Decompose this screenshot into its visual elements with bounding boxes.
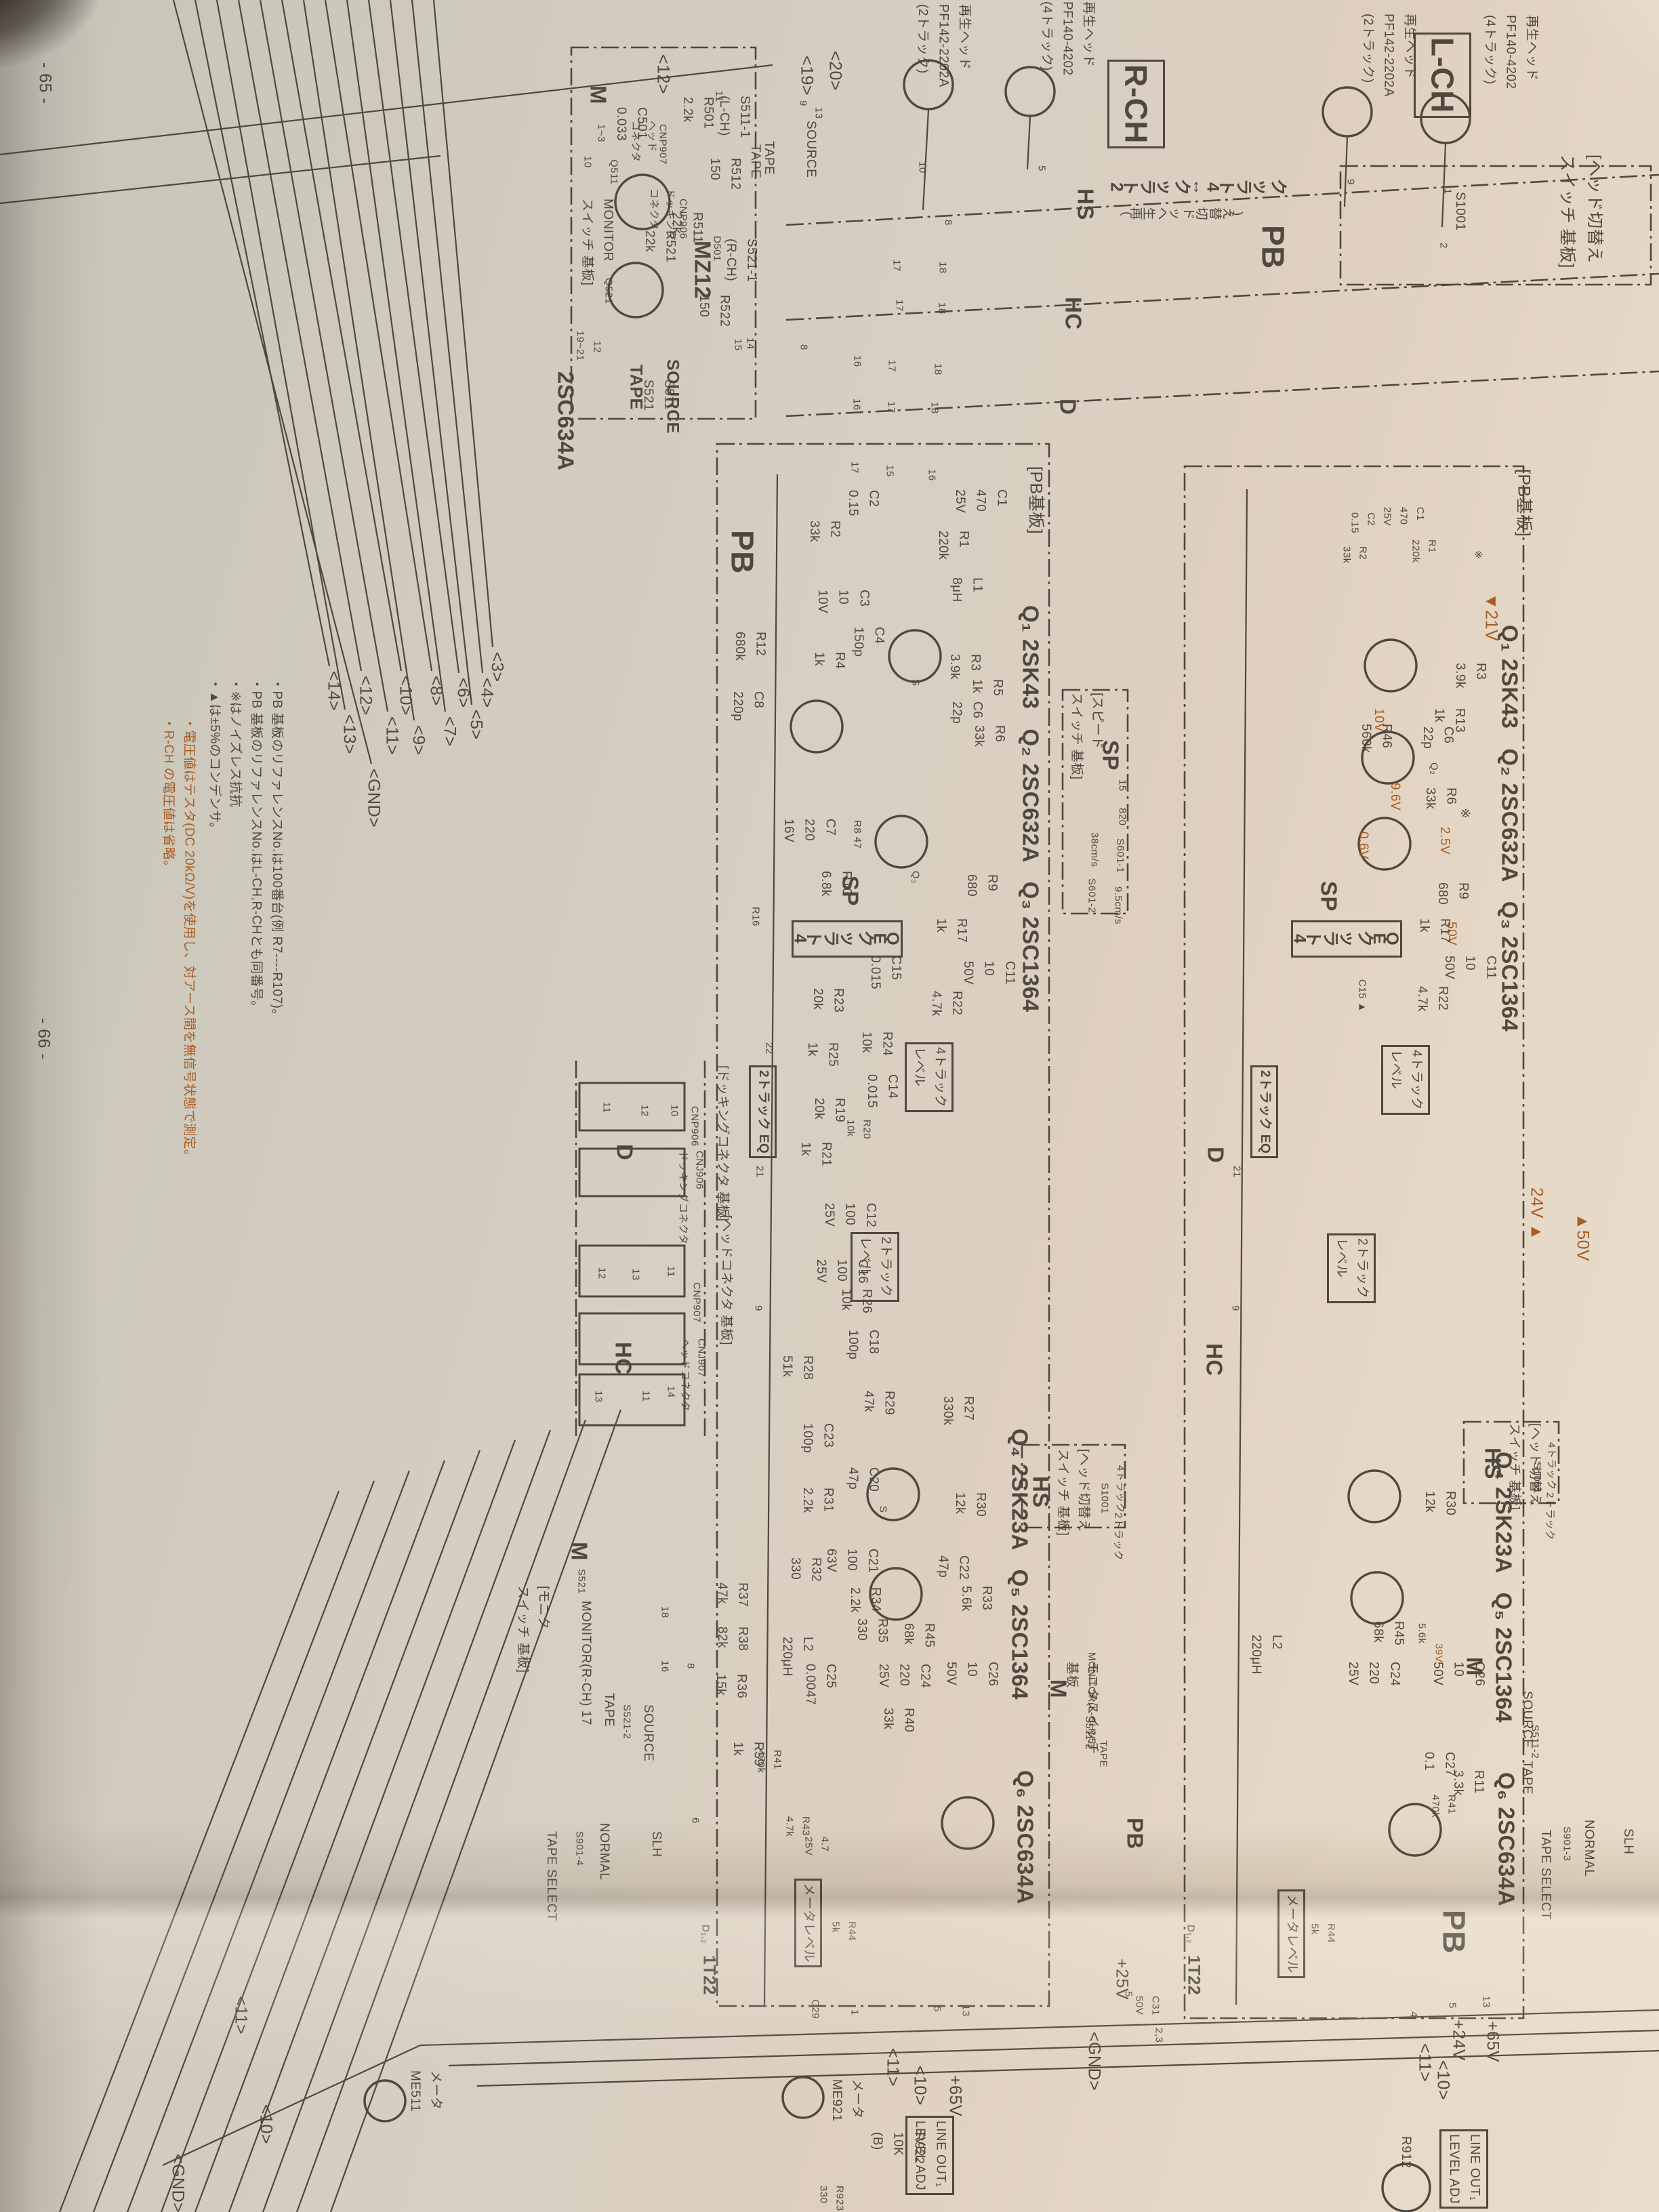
docking-conn-small: ドッキング コネクタ — [645, 188, 678, 241]
pin: 10 — [914, 161, 930, 173]
head-rch-2track: 再生ヘッド PF142-2202A (2トラック) — [912, 4, 974, 87]
r22-r: R22 4.7k — [1411, 986, 1453, 1012]
pin: 17 — [883, 360, 899, 372]
pin: 8 — [795, 344, 811, 350]
r17-r: R17 1k — [1413, 918, 1455, 943]
pin: 22 — [760, 1042, 777, 1054]
r35: R35 330 — [851, 1618, 893, 1643]
s521-ref: S521 — [573, 1569, 589, 1594]
pin: 13 — [627, 1269, 643, 1281]
q3-ref: Q₃ — [907, 871, 923, 884]
track4-small-r: 4トラック — [1542, 1442, 1559, 1490]
pin: 17 — [888, 260, 904, 272]
r17: R17 1k — [930, 918, 972, 943]
level4-l: 4トラック レベル — [905, 1042, 954, 1112]
s901-4: S901-4 — [571, 1831, 587, 1866]
cnj907: CNJ907 ヘッドコネクタ — [676, 1338, 710, 1412]
pin: 5 — [928, 2006, 945, 2012]
conn-11-mid: <11> — [879, 2048, 907, 2087]
r30: R30 12k — [949, 1492, 991, 1517]
conn-gnd-mid: <GND> — [1080, 2032, 1108, 2091]
s511-2-r: S511-2 — [1526, 1725, 1542, 1759]
c7: C7 220 16V — [777, 819, 840, 842]
track-switch-sub: (再生ヘッド 切替え) — [1124, 203, 1239, 224]
annotation-layer: - 65 - - 66 - ・PB 基板のリファレンスNo.は100番台(例 R… — [0, 0, 1659, 2212]
pb-band-l: PB — [717, 530, 768, 574]
conn-8: <8> — [422, 676, 450, 706]
c29: C29 — [806, 1999, 823, 2019]
c2-r: C2 0.15 — [1346, 512, 1379, 533]
lineout-r: LINE OUT₁ LEVEL ADJ — [1439, 2129, 1488, 2209]
conn-gnd: <GND> — [360, 769, 388, 827]
r1-r: R1 220k — [1407, 539, 1440, 563]
d12-r: D₁,₂ — [1182, 1925, 1198, 1944]
slh-l: SLH — [645, 1831, 666, 1857]
r912: R912 — [1395, 2136, 1416, 2168]
q45-l-types: Q₄ 2SK23A Q₅ 2SC1364 — [1002, 1429, 1038, 1700]
s1001-label: S1001 — [1449, 192, 1470, 230]
s1001-r: S1001 — [1528, 1462, 1544, 1494]
noiseless-mark-2: ※ — [1469, 550, 1486, 559]
conn-10-bl: <10> — [252, 2104, 280, 2144]
conn-5: <5> — [462, 710, 490, 740]
r31: R31 2.2k — [796, 1488, 838, 1513]
r19: R19 20k — [808, 1098, 850, 1122]
s1001-bottom: S1001 — [1096, 1483, 1112, 1514]
c-4725: 4.7 25V — [800, 1837, 833, 1856]
hc-band-l: HC — [605, 1342, 641, 1375]
rch-label: R-CH — [1107, 60, 1165, 148]
meter-level-l: メータレベル — [794, 1879, 822, 1967]
track4-small: 4トラック — [1111, 1465, 1128, 1513]
r28: R28 51k — [776, 1355, 818, 1380]
conn-6: <6> — [449, 678, 477, 708]
conn-10-mid: <10> — [906, 2066, 934, 2106]
c2: C2 0.15 — [842, 490, 884, 516]
eq2-l: 2トラック EQ — [749, 1065, 777, 1158]
pin: 16 — [848, 398, 864, 411]
s601-1: S601-1 — [1111, 838, 1128, 873]
level2-r: 2トラック レベル — [1327, 1233, 1376, 1303]
head-rch-4track: 再生ヘッド PF140-4202 (4トラック) — [1036, 1, 1098, 76]
r25: R25 1k — [801, 1042, 843, 1067]
d12-r-type: 1T22 — [1180, 1955, 1208, 1995]
pin: 16 — [848, 355, 865, 367]
q6-l-type: Q₆ 2SC634A — [1007, 1770, 1043, 1904]
conn-gnd-bl: <GND> — [164, 2154, 192, 2212]
r45: R45 68k — [897, 1623, 939, 1647]
v06: 0.6V — [1352, 832, 1373, 859]
r43: R43 4.7k — [781, 1816, 814, 1837]
s511-s521: S511 S521 — [637, 380, 679, 411]
tape-label: TAPE — [744, 144, 765, 178]
head-lch-4track: 再生ヘッド PF140-4202 (4トラック) — [1479, 15, 1541, 89]
pin: 12 — [588, 341, 605, 353]
v50-tri: ▲50V — [1569, 1213, 1597, 1261]
l1: L1 8μH — [945, 577, 987, 602]
r512: R512 150 — [703, 158, 745, 190]
c6-r: C6 22p — [1416, 726, 1458, 749]
pin: 21 — [1228, 1166, 1244, 1178]
noiseless-mark: ※ — [1454, 808, 1475, 819]
pin: 9 — [794, 100, 811, 106]
pin: 10 — [579, 156, 595, 168]
r23: R23 20k — [806, 988, 848, 1012]
v96: 9.6V — [1384, 783, 1405, 811]
r45-r: R45 68k — [1367, 1621, 1409, 1645]
v24: +24V — [1445, 2020, 1473, 2061]
eq4-l: 4トラック EQ — [792, 920, 903, 958]
c24: C24 220 25V — [872, 1664, 935, 1688]
hc-band: HC — [1055, 297, 1091, 330]
pin: 4 — [1405, 2011, 1421, 2018]
conn-19: <19> — [793, 56, 821, 96]
conn-11: <11> — [378, 716, 406, 755]
r44-r: R44 5k — [1306, 1923, 1339, 1943]
cnp907: CNP907 — [688, 1282, 704, 1323]
pin: 13 — [810, 107, 826, 119]
s511-1: S511-1 (L-CH) — [713, 96, 755, 138]
c20: C20 47p — [842, 1467, 884, 1492]
pin: 16 — [923, 469, 939, 481]
c12: C12 100 25V — [818, 1203, 880, 1227]
r22: R22 4.7k — [925, 991, 967, 1017]
c21: C21 100 63V — [820, 1549, 882, 1573]
pin: 2,3 — [1150, 2028, 1166, 2043]
c31: C31 50V — [1130, 1996, 1164, 2015]
s521-1: S521-1 (R-CH) — [720, 239, 762, 282]
v39: 39V — [1430, 1643, 1446, 1662]
s601-2: S601-2 — [1083, 878, 1099, 913]
monitor-board-label: MONITOR スイッチ 基板] — [576, 199, 618, 286]
eq2-r: 2トラック EQ — [1250, 1065, 1278, 1158]
r46-r: R46 560k — [1355, 724, 1397, 753]
eq4-r: 4トラック EQ — [1291, 920, 1402, 958]
pb-board-r-label: [PB基板] — [1510, 469, 1538, 537]
r2: R2 33k — [803, 520, 845, 542]
c8: C8 220p — [726, 691, 769, 721]
r30-r: R30 12k — [1418, 1491, 1460, 1515]
d501-type: MZ12 — [684, 241, 720, 299]
speed-820: 820 — [1113, 808, 1130, 826]
r6: R6 33k — [968, 725, 1010, 747]
pin: 18 — [929, 363, 945, 375]
s901-3: S901-3 — [1558, 1826, 1574, 1861]
pin: 10 — [665, 1105, 682, 1117]
r37: R37 47k — [711, 1582, 753, 1607]
conn-9: <9> — [405, 725, 432, 756]
hs-band: HS — [1067, 188, 1103, 220]
pin: 17 — [882, 401, 899, 413]
schematic-photo: - 65 - - 66 - ・PB 基板のリファレンスNo.は100番台(例 R… — [0, 0, 1659, 2212]
pin: 14 — [741, 337, 758, 350]
r6-r: R6 33k — [1419, 787, 1461, 809]
c3: C3 10 10V — [811, 590, 874, 613]
r27: R27 330k — [937, 1396, 979, 1425]
q511-type: 2SC634A — [548, 371, 583, 471]
pin: 1 — [1439, 188, 1455, 194]
r9: R9 680 — [960, 874, 1002, 897]
r522: R522 150 — [693, 295, 735, 327]
pin: 16 — [656, 1660, 672, 1673]
conn-4: <4> — [473, 678, 501, 708]
r8: R8 47 — [848, 820, 865, 849]
track-switch-label: 2トラック ↔ 4トラック — [1111, 173, 1286, 201]
cnj906: CNJ906 ドッキングコネクタ — [674, 1151, 708, 1244]
m-band-bottom-l: M — [561, 1542, 597, 1561]
source-sw2: SOURCE — [637, 1704, 658, 1761]
r21: R21 1k — [794, 1142, 836, 1166]
tape-sw-r: TAPE — [1516, 1761, 1537, 1795]
slh-r: SLH — [1617, 1828, 1638, 1854]
tape-select-r: TAPE SELECT — [1534, 1830, 1555, 1920]
r40: R40 33k — [877, 1708, 919, 1732]
tape-label: TAPE — [1094, 1740, 1111, 1767]
c1: C1 470 25V — [949, 489, 1011, 513]
normal-r: NORMAL — [1578, 1820, 1599, 1877]
conn-12: <12> — [649, 54, 677, 94]
sp-band-r: SP — [1311, 881, 1347, 912]
pin: 12 — [593, 1267, 609, 1279]
meter-me921: メータ ME921 — [825, 2079, 867, 2122]
pin: 11 — [598, 1102, 614, 1113]
r12: R12 680k — [729, 632, 771, 661]
r34: R34 2.2k — [844, 1587, 886, 1613]
c26: C26 10 50V — [940, 1662, 1002, 1686]
pin: 19~21 — [571, 331, 588, 361]
pin: 11 — [662, 1266, 678, 1277]
c1-r: C1 470 25V — [1378, 507, 1428, 526]
r36: R36 15k — [710, 1674, 752, 1698]
r2-r: R2 33k — [1338, 546, 1371, 564]
r29: R29 47k — [857, 1391, 899, 1415]
pin: 2 — [1435, 243, 1451, 249]
r3: R3 3.9k — [943, 654, 985, 680]
pin: S — [874, 1506, 890, 1513]
pin: 17 — [890, 300, 907, 312]
page-number-right: - 66 - — [30, 1018, 58, 1059]
pin: 15 — [881, 465, 897, 477]
docking-board-label: [ドッキングコネクタ 基板] — [712, 1065, 733, 1222]
conn-11-bl: <11> — [227, 1996, 255, 2034]
pin: 9 — [1342, 179, 1358, 185]
c4: C4 150p — [847, 627, 889, 657]
pin: 1~3 — [592, 124, 609, 142]
pin: 9 — [1227, 1305, 1243, 1311]
l2-r: L2 220μH — [1245, 1635, 1287, 1675]
conn-12b: <12> — [352, 676, 380, 716]
m-band-r2: M — [1456, 1657, 1492, 1676]
lineout-l: LINE OUT₁ LEVEL ADJ — [905, 2116, 954, 2195]
q511-ref: Q511 — [605, 159, 621, 185]
v25: 2.5V — [1433, 827, 1454, 855]
v21: ▼21V — [1477, 593, 1505, 641]
pb-board-l-label: [PB基板] — [1022, 466, 1050, 534]
pin: 17 — [846, 462, 862, 474]
sp-band-l: SP — [832, 876, 868, 906]
d-band-r: D — [1197, 1147, 1233, 1163]
headconn-board-label: [ヘッドコネクタ 基板] — [715, 1215, 736, 1345]
meter-me511: メータ ME511 — [404, 2070, 446, 2112]
level4-r: 4トラック レベル — [1381, 1045, 1430, 1115]
r-56k: 5.6k — [1413, 1623, 1429, 1643]
pb-band-l-bottom: PB — [1117, 1818, 1153, 1849]
r20: R20 10k — [842, 1120, 875, 1139]
cnp907-top: CNP907 — [654, 124, 670, 165]
c24-r: C24 220 25V — [1342, 1662, 1404, 1686]
pin: 1 — [846, 2009, 862, 2015]
r41-r: R41 470k — [1427, 1795, 1460, 1818]
r33: R33 5.6k — [955, 1586, 997, 1612]
r3-r: R3 3.9k — [1449, 663, 1491, 689]
conn-14: <14> — [320, 671, 348, 711]
pin: 13 — [1477, 1996, 1494, 2008]
head-lch-2track: 再生ヘッド PF142-2202A (2トラック) — [1357, 14, 1419, 97]
speed-38: 38cm/s — [1086, 832, 1102, 867]
normal-l: NORMAL — [593, 1823, 614, 1880]
r16: R16 — [747, 907, 763, 926]
conn-20: <20> — [821, 51, 849, 91]
r24: R24 10k — [855, 1031, 897, 1056]
headswitch-board-bottom: [ヘッド切替え スイッチ 基板] — [1052, 1449, 1094, 1536]
r44-l: R44 5k — [827, 1921, 860, 1941]
pin: 6 — [687, 1818, 703, 1824]
r41: R41 470k — [752, 1750, 785, 1774]
c6: C6 22p — [945, 701, 987, 724]
source-label: SOURCE — [800, 121, 821, 178]
c18: C18 100p — [842, 1330, 884, 1359]
r9-r: R9 680 — [1431, 882, 1473, 905]
conn-10-r: <10> — [1429, 2060, 1457, 2100]
track2-small-r: 2トラック — [1541, 1492, 1557, 1540]
pin: 14 — [662, 1386, 678, 1398]
monitor-rch: MONITOR(R-CH) 17 — [575, 1601, 596, 1725]
d12-l-type: 1T22 — [695, 1955, 723, 1995]
pin: 15 — [1113, 779, 1130, 792]
notes-orange: ・電圧値はテスタ(DC 20kΩ/V)を使用し、対アース間を無信号状態で測定。 … — [157, 717, 199, 1163]
d-band: D — [1050, 398, 1086, 415]
c11-r: C11 10 50V — [1438, 956, 1500, 979]
m-band-top: M — [580, 85, 616, 104]
pin: 5 — [1443, 2003, 1460, 2009]
hc-band-r: HC — [1196, 1343, 1232, 1376]
level2-l: 2トラック レベル — [851, 1232, 899, 1302]
v24-tri: 24V ▲ — [1523, 1187, 1551, 1241]
c25: C25 0.0047 — [799, 1664, 841, 1705]
cnp906: CNP906 — [686, 1106, 702, 1147]
pin: 21 — [751, 1166, 767, 1178]
pin: 8 — [682, 1663, 698, 1669]
pb-band-r: PB — [1248, 225, 1298, 269]
v65-r: +65V — [1479, 2021, 1507, 2062]
c27-r: C27 0.1 — [1418, 1752, 1460, 1776]
c22: C22 47p — [932, 1555, 974, 1580]
pin: 5 — [1033, 165, 1049, 171]
c14: C14 0.015 — [861, 1074, 903, 1108]
c11: C11 10 50V — [957, 961, 1019, 985]
r923: R923 330 — [815, 2186, 848, 2211]
speed-95: 9.5cm/s — [1109, 886, 1126, 924]
tape-sw2: TAPE — [598, 1693, 619, 1727]
notes-black: ・PB 基板のリファレンスNo.は100番台(例 R7----R107)。 ・P… — [203, 678, 287, 1022]
conn-13: <13> — [335, 714, 363, 754]
pin: 18 — [656, 1606, 672, 1618]
q123-l-types: Q₁ 2SK43 Q₂ 2SC632A Q₃ 2SC1364 — [1012, 605, 1048, 1012]
page-number-left: - 65 - — [31, 62, 59, 104]
pin: 11 — [637, 1391, 653, 1402]
lch-label: L-CH — [1414, 33, 1471, 118]
r1: R1 220k — [932, 531, 974, 560]
pin: 18 — [934, 262, 950, 274]
meter-level-r: メータレベル — [1277, 1889, 1305, 1978]
c15: C15 0.015 — [864, 956, 906, 989]
pin: 13 — [957, 2005, 973, 2017]
pin: 9 — [750, 1305, 766, 1311]
pin: 8 — [939, 220, 956, 226]
headswitch-board-label: [ヘッド切替え スイッチ 基板] — [1553, 155, 1608, 268]
r4: R4 1k — [808, 652, 850, 669]
track2-small: 2トラック — [1109, 1513, 1126, 1561]
pin: 18 — [933, 302, 949, 314]
d-band-l: D — [607, 1144, 642, 1160]
v65-mid: +65V — [941, 2075, 969, 2116]
s521-2: S521-2 — [618, 1704, 634, 1739]
r5: R5 1k — [966, 679, 1008, 696]
conn-7: <7> — [436, 716, 464, 747]
q2-ref-r: Q₂ — [1425, 762, 1441, 775]
monitor-board-label-2: [モニタ スイッチ 基板] — [512, 1586, 554, 1673]
pin: 13 — [590, 1391, 606, 1403]
pin: S — [907, 679, 923, 687]
pin: 12 — [636, 1105, 652, 1117]
d12-l: D₁,₂ — [697, 1925, 713, 1944]
c23: C23 100p — [796, 1423, 838, 1453]
conn-10: <10> — [392, 676, 419, 716]
tape-select-l: TAPE SELECT — [540, 1831, 561, 1921]
sp-switch: SP — [1092, 740, 1128, 771]
pin: 18 — [926, 402, 942, 414]
r38: R38 82k — [711, 1626, 753, 1651]
c15-r: C15 ▲ — [1353, 979, 1370, 1012]
cnp906-top: CNP906 — [674, 199, 691, 239]
pb-band-r-bottom: PB — [1429, 1910, 1479, 1954]
